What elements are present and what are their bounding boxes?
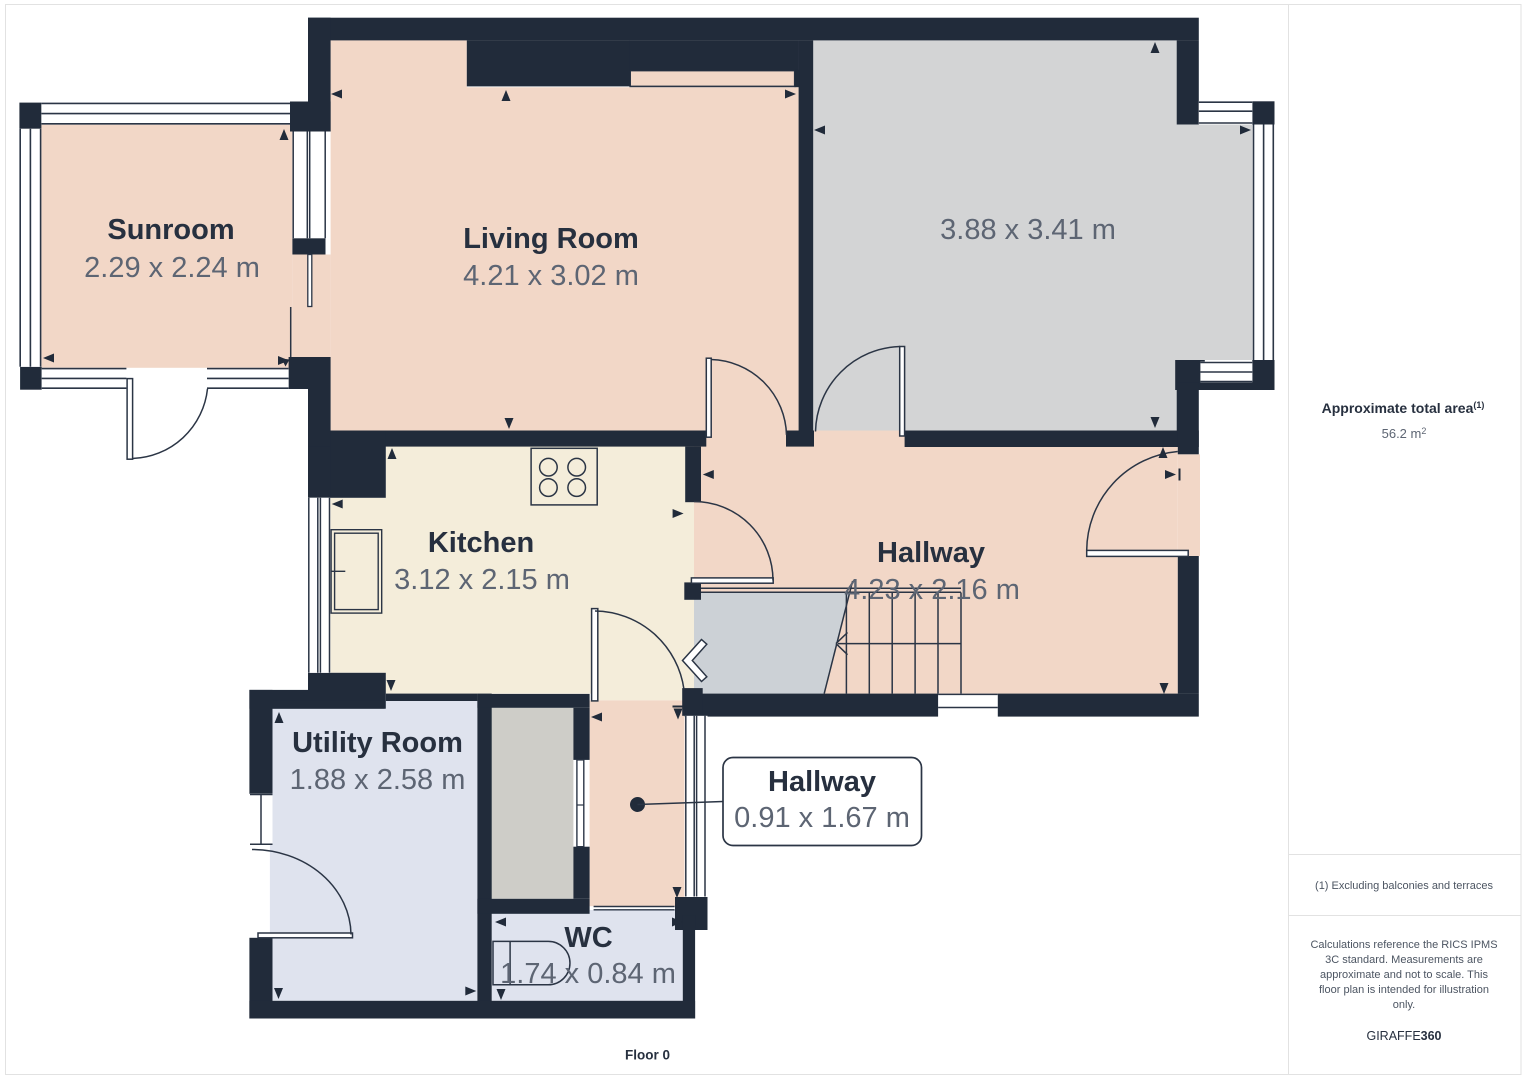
- svg-text:approximate and not to scale.: approximate and not to scale. This: [1320, 969, 1488, 981]
- svg-text:(1) Excluding balconies and te: (1) Excluding balconies and terraces: [1315, 880, 1493, 892]
- svg-text:GIRAFFE360: GIRAFFE360: [1366, 1029, 1441, 1043]
- svg-text:Living Room: Living Room: [463, 223, 639, 255]
- svg-text:4.23 x 2.16 m: 4.23 x 2.16 m: [844, 574, 1020, 606]
- svg-text:4.21 x 3.02 m: 4.21 x 3.02 m: [463, 260, 639, 292]
- svg-text:Utility Room: Utility Room: [292, 727, 463, 759]
- svg-text:Hallway: Hallway: [877, 537, 985, 569]
- svg-text:WC: WC: [564, 922, 612, 954]
- svg-text:Floor 0: Floor 0: [625, 1048, 670, 1063]
- svg-text:3.88 x 3.41 m: 3.88 x 3.41 m: [940, 214, 1116, 246]
- svg-text:Approximate total area(1): Approximate total area(1): [1322, 400, 1485, 416]
- svg-text:3.12 x 2.15 m: 3.12 x 2.15 m: [394, 564, 570, 596]
- svg-text:Kitchen: Kitchen: [428, 527, 534, 559]
- svg-text:3C standard. Measurements are: 3C standard. Measurements are: [1325, 954, 1483, 966]
- svg-text:1.74 x 0.84 m: 1.74 x 0.84 m: [500, 958, 676, 990]
- svg-text:only.: only.: [1393, 999, 1415, 1011]
- svg-text:floor plan is intended for ill: floor plan is intended for illustration: [1319, 984, 1489, 996]
- svg-text:56.2 m2: 56.2 m2: [1382, 426, 1427, 441]
- svg-text:0.91 x 1.67 m: 0.91 x 1.67 m: [734, 802, 910, 834]
- svg-text:Calculations reference the RIC: Calculations reference the RICS IPMS: [1310, 939, 1497, 951]
- svg-text:2.29 x 2.24 m: 2.29 x 2.24 m: [84, 252, 260, 284]
- svg-text:Hallway: Hallway: [768, 766, 876, 798]
- svg-text:Sunroom: Sunroom: [107, 214, 234, 246]
- svg-text:1.88 x 2.58 m: 1.88 x 2.58 m: [290, 764, 466, 796]
